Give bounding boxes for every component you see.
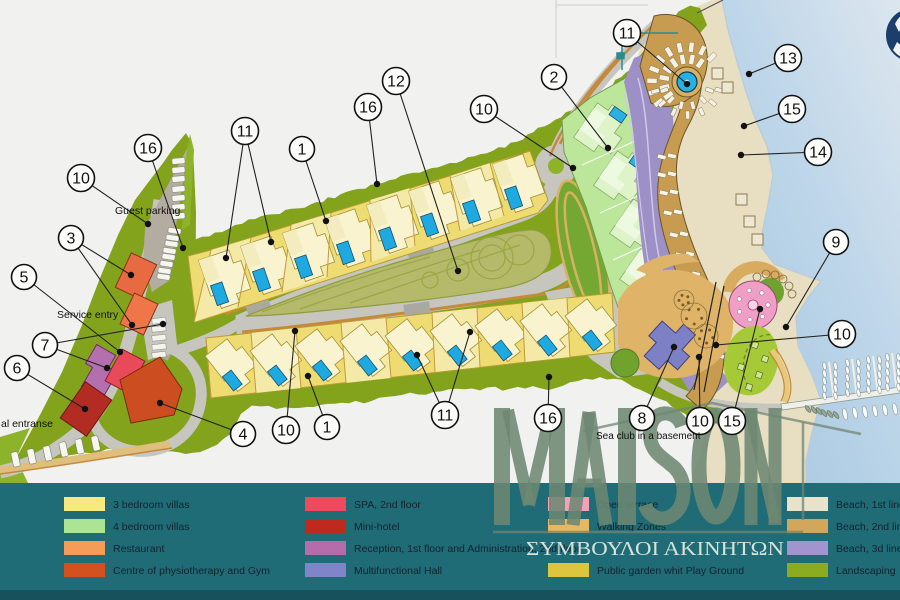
- svg-text:Sea club in a basement: Sea club in a basement: [596, 431, 701, 442]
- svg-text:Landscaping: Landscaping: [836, 565, 896, 577]
- svg-text:10: 10: [691, 414, 709, 431]
- svg-text:1: 1: [298, 142, 307, 159]
- svg-text:Beach, 1st line: Beach, 1st line: [836, 499, 900, 511]
- svg-text:Multifunctional Hall: Multifunctional Hall: [354, 565, 442, 577]
- svg-text:Guest parking: Guest parking: [115, 205, 181, 217]
- svg-text:3: 3: [67, 231, 76, 248]
- svg-text:Beach, 3d line: Beach, 3d line: [836, 543, 900, 555]
- svg-text:15: 15: [723, 414, 741, 431]
- svg-text:12: 12: [387, 74, 405, 91]
- svg-text:Restaurant: Restaurant: [113, 543, 164, 555]
- svg-text:ΣΥΜΒΟΥΛΟΙ ΑΚΙΝΗΤΩΝ: ΣΥΜΒΟΥΛΟΙ ΑΚΙΝΗΤΩΝ: [526, 538, 784, 560]
- svg-text:9: 9: [832, 235, 841, 252]
- svg-text:SPA, 2nd floor: SPA, 2nd floor: [354, 499, 421, 511]
- svg-text:11: 11: [237, 124, 254, 141]
- svg-text:11: 11: [619, 26, 636, 43]
- svg-text:15: 15: [783, 102, 801, 119]
- svg-text:10: 10: [475, 102, 493, 119]
- svg-text:16: 16: [139, 141, 157, 158]
- svg-text:10: 10: [72, 171, 90, 188]
- svg-text:16: 16: [539, 411, 557, 428]
- svg-text:Mini-hotel: Mini-hotel: [354, 521, 400, 533]
- svg-text:8: 8: [638, 411, 647, 428]
- svg-text:4: 4: [239, 427, 248, 444]
- svg-text:7: 7: [41, 338, 50, 355]
- svg-text:Centre of physiotherapy and Gy: Centre of physiotherapy and Gym: [113, 565, 270, 577]
- svg-text:4 bedroom villas: 4 bedroom villas: [113, 521, 189, 533]
- svg-text:10: 10: [277, 423, 295, 440]
- svg-text:2: 2: [550, 70, 559, 87]
- svg-text:6: 6: [13, 361, 22, 378]
- svg-text:13: 13: [779, 51, 797, 68]
- svg-text:al entranse: al entranse: [1, 418, 53, 430]
- svg-text:3 bedroom villas: 3 bedroom villas: [113, 499, 189, 511]
- svg-text:5: 5: [20, 270, 29, 287]
- svg-text:Beach, 2nd line: Beach, 2nd line: [836, 521, 900, 533]
- svg-text:Public garden whit Play Ground: Public garden whit Play Ground: [597, 565, 744, 577]
- svg-text:10: 10: [833, 327, 851, 344]
- svg-text:16: 16: [359, 100, 377, 117]
- svg-text:Service entry: Service entry: [57, 309, 119, 321]
- svg-text:1: 1: [323, 420, 332, 437]
- svg-text:11: 11: [437, 408, 454, 425]
- svg-text:14: 14: [809, 145, 827, 162]
